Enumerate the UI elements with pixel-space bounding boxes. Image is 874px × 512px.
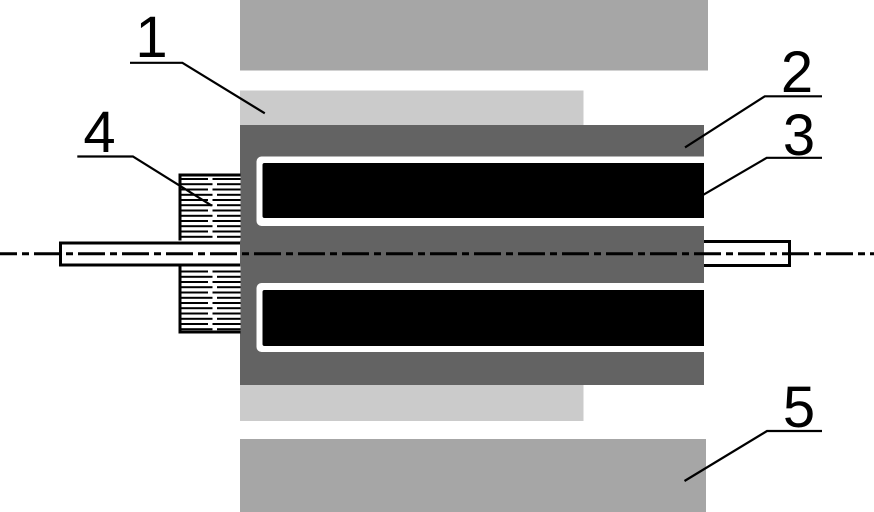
svg-text:4: 4 bbox=[83, 100, 115, 165]
svg-text:1: 1 bbox=[135, 5, 167, 70]
